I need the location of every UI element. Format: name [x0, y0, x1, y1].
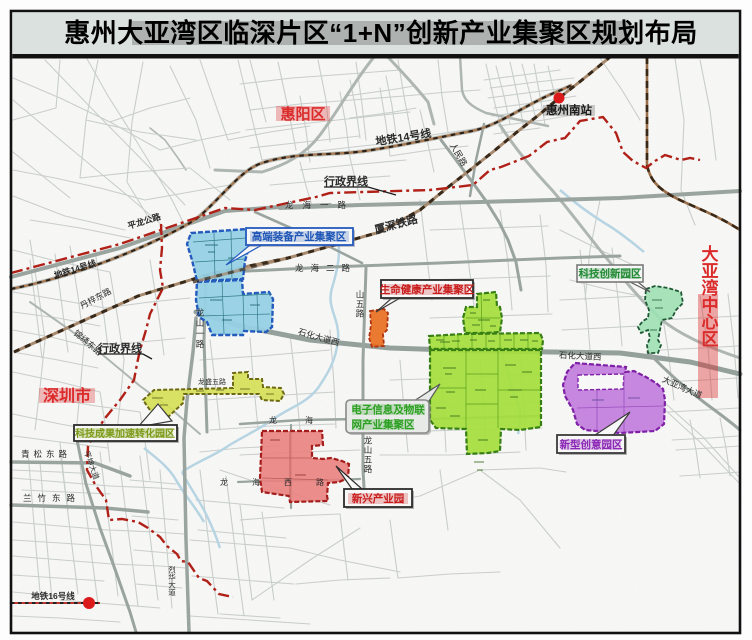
svg-text:惠州大亚湾区临深片区“1+N”创新产业集聚区规划布局: 惠州大亚湾区临深片区“1+N”创新产业集聚区规划布局 — [64, 18, 697, 48]
